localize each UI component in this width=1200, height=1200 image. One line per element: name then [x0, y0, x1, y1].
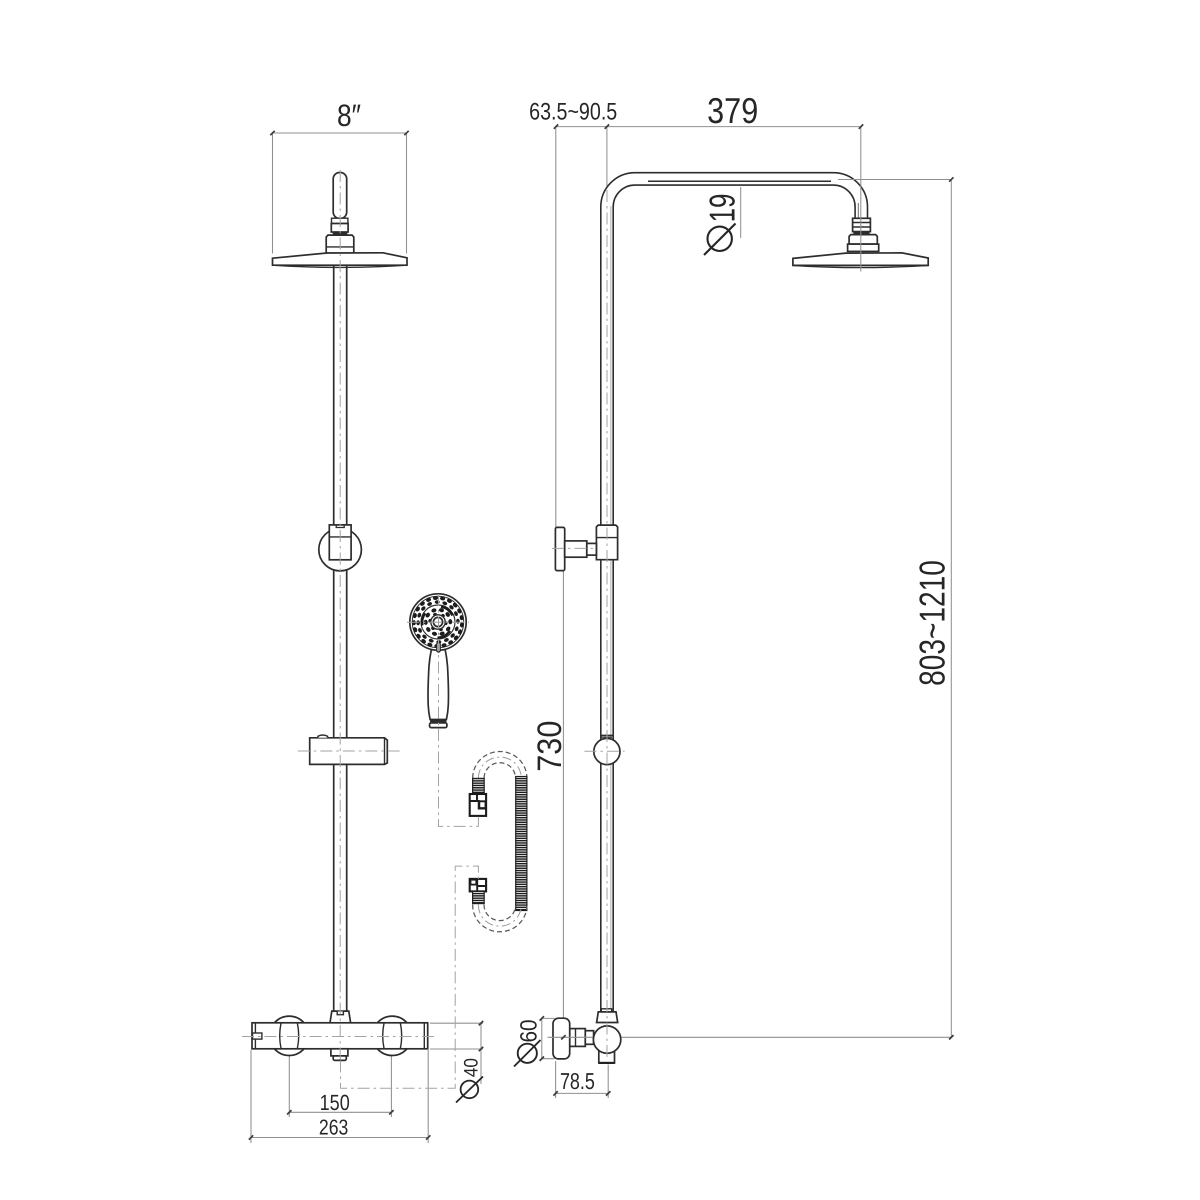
svg-text:19: 19: [702, 194, 743, 223]
svg-text:63.5~90.5: 63.5~90.5: [529, 98, 617, 125]
svg-text:60: 60: [516, 1019, 542, 1042]
svg-text:263: 263: [319, 1116, 348, 1140]
svg-text:803~1210: 803~1210: [912, 560, 953, 686]
svg-text:730: 730: [531, 721, 569, 772]
svg-text:150: 150: [320, 1090, 350, 1115]
svg-text:8″: 8″: [337, 98, 361, 133]
svg-text:40: 40: [461, 1058, 483, 1077]
svg-text:379: 379: [707, 90, 758, 131]
svg-text:78.5: 78.5: [560, 1068, 595, 1094]
